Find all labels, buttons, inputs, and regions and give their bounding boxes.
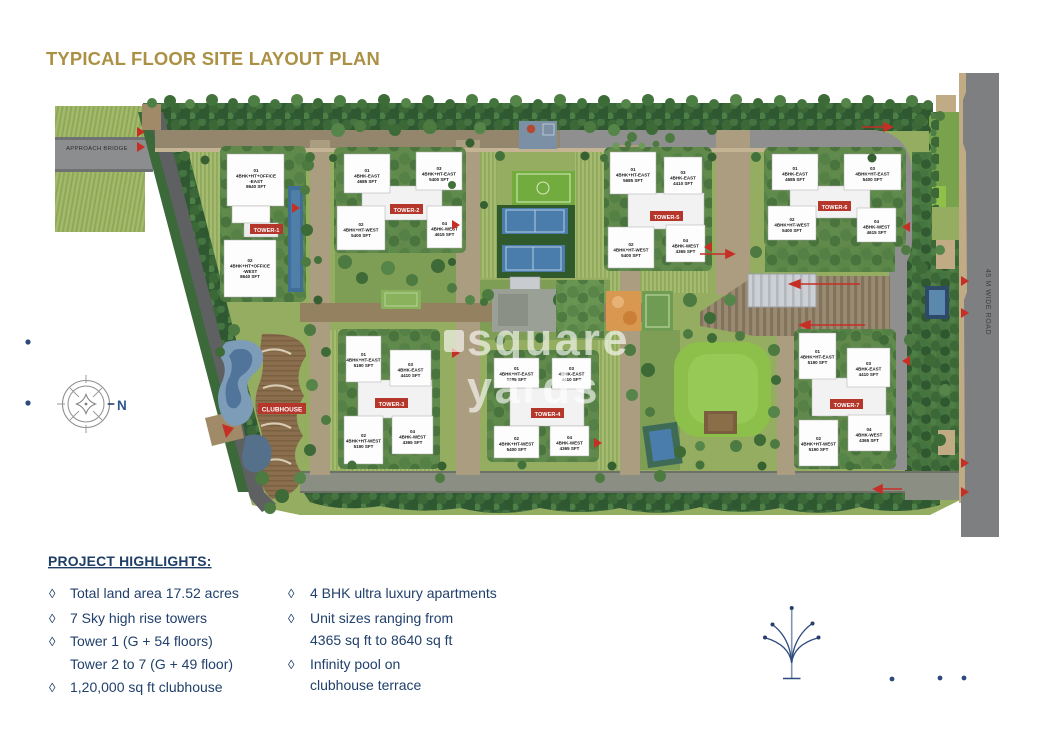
svg-text:yards: yards <box>467 362 600 413</box>
svg-text:◊: ◊ <box>49 586 56 601</box>
svg-text:TOWER-2: TOWER-2 <box>394 208 420 214</box>
svg-text:4365 sq ft to 8640 sq ft: 4365 sq ft to 8640 sq ft <box>310 632 453 648</box>
svg-text:TOWER-5: TOWER-5 <box>654 215 680 221</box>
svg-text:APPROACH BRIDGE: APPROACH BRIDGE <box>66 146 128 152</box>
svg-text:4 BHK ultra luxury apartments: 4 BHK ultra luxury apartments <box>310 585 497 601</box>
svg-text:45 M WIDE ROAD: 45 M WIDE ROAD <box>984 269 991 335</box>
svg-text:TOWER-3: TOWER-3 <box>379 402 405 408</box>
svg-text:1,20,000 sq ft clubhouse: 1,20,000 sq ft clubhouse <box>70 679 223 695</box>
svg-text:clubhouse terrace: clubhouse terrace <box>310 677 422 693</box>
svg-text:TOWER-1: TOWER-1 <box>254 228 280 234</box>
svg-text:PROJECT HIGHLIGHTS:: PROJECT HIGHLIGHTS: <box>48 553 212 569</box>
svg-text:N: N <box>117 398 127 413</box>
svg-text:7 Sky high rise towers: 7 Sky high rise towers <box>70 610 207 626</box>
svg-text:◊: ◊ <box>288 657 295 672</box>
svg-text:◊: ◊ <box>49 680 56 695</box>
svg-text:◊: ◊ <box>49 611 56 626</box>
svg-text:Tower 1 (G + 54 floors): Tower 1 (G + 54 floors) <box>70 633 213 649</box>
svg-text:◊: ◊ <box>288 611 295 626</box>
svg-text:CLUBHOUSE: CLUBHOUSE <box>262 407 303 414</box>
svg-text:Unit sizes ranging from: Unit sizes ranging from <box>310 610 453 626</box>
svg-text:Total land area 17.52 acres: Total land area 17.52 acres <box>70 585 239 601</box>
svg-text:TOWER-6: TOWER-6 <box>822 205 848 211</box>
svg-text:TOWER-7: TOWER-7 <box>834 403 860 409</box>
svg-text:square: square <box>467 314 630 365</box>
svg-text:◊: ◊ <box>288 586 295 601</box>
svg-text:Tower 2 to 7 (G + 49 floor): Tower 2 to 7 (G + 49 floor) <box>70 656 233 672</box>
svg-text:Infinity pool on: Infinity pool on <box>310 656 400 672</box>
svg-text:◊: ◊ <box>49 634 56 649</box>
svg-text:TYPICAL FLOOR SITE LAYOUT PLAN: TYPICAL FLOOR SITE LAYOUT PLAN <box>46 48 380 69</box>
